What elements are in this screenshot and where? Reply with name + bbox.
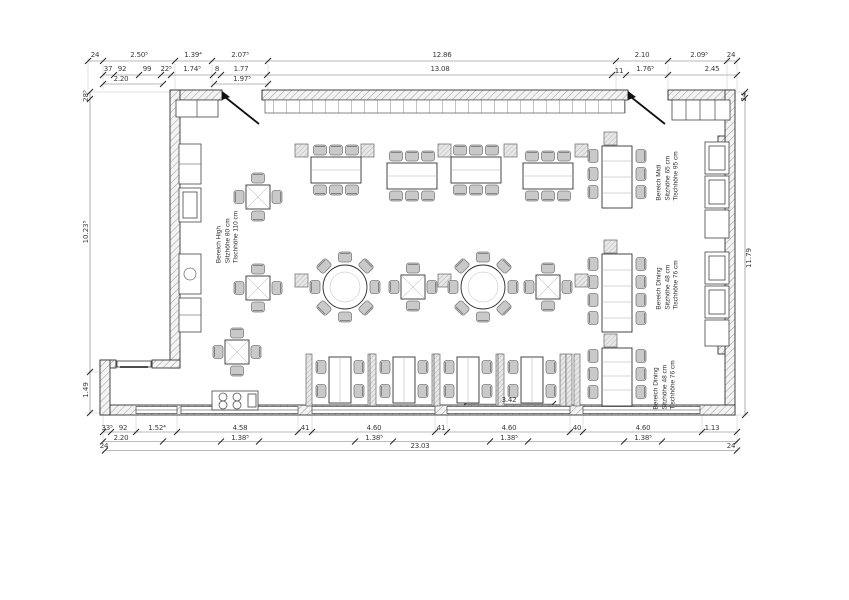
- dim-label: 1.38⁵: [365, 434, 382, 442]
- area-seat-height: Sitzhöhe 65 cm: [664, 151, 673, 200]
- dim-label: 1.49: [82, 382, 90, 398]
- dim-label: 4.60: [367, 424, 382, 432]
- dim-label: 12.86: [432, 51, 451, 59]
- dim-label: 4.60: [502, 424, 517, 432]
- area-name: Bereich Dining: [655, 260, 664, 309]
- dim-label: 2.20: [114, 434, 129, 442]
- area-label-midi: Bereich Midi Sitzhöhe 65 cm Tischhöhe 95…: [655, 151, 681, 200]
- dim-label: 1.77: [234, 65, 249, 73]
- area-name: Bereich Midi: [655, 151, 664, 200]
- area-seat-height: Sitzhöhe 48 cm: [664, 260, 673, 309]
- area-table-height: Tischhöhe 95 cm: [672, 151, 681, 200]
- dim-label: 33⁵: [101, 424, 112, 432]
- dim-label: 92: [119, 424, 128, 432]
- dim-label: 23.03: [410, 442, 429, 450]
- area-seat-height: Sitzhöhe 48 cm: [661, 360, 670, 409]
- service-counter: [212, 391, 258, 410]
- dim-label: 41: [301, 424, 310, 432]
- dim-label: 24: [740, 93, 748, 102]
- dim-label: 11: [615, 67, 624, 75]
- dim-label: 11.79: [745, 248, 753, 268]
- dim-label: 2.45: [705, 65, 720, 73]
- dim-label: 24: [727, 51, 736, 59]
- dim-label: 13.08: [430, 65, 449, 73]
- dim-label: 2.09⁵: [690, 51, 707, 59]
- cabinets-left: [179, 144, 201, 332]
- dim-label: 37: [104, 65, 113, 73]
- floor-plan: 24 2.50⁵ 1.39⁴ 2.07⁵ 12.86 2.10 2.09⁵ 24…: [0, 0, 849, 600]
- area-label-dining-2: Bereich Dining Sitzhöhe 48 cm Tischhöhe …: [652, 360, 678, 409]
- area-label-dining-1: Bereich Dining Sitzhöhe 48 cm Tischhöhe …: [655, 260, 681, 309]
- dim-label: 99: [143, 65, 152, 73]
- plan-graphics: [0, 0, 849, 600]
- dim-label: 8: [215, 65, 219, 73]
- dim-label: 92: [118, 65, 127, 73]
- dim-label: 2.10: [635, 51, 650, 59]
- dim-label: 28⁵: [82, 90, 90, 102]
- dim-label: 3.42: [502, 396, 517, 404]
- side-door: [116, 360, 152, 368]
- dim-label: 1.97⁵: [233, 75, 250, 83]
- booth-row: [306, 354, 580, 406]
- dim-label: 4.60: [636, 424, 651, 432]
- dining-long-table-lower: [588, 348, 646, 406]
- area-table-height: Tischhöhe 76 cm: [672, 260, 681, 309]
- area-table-height: Tischhöhe 110 cm: [232, 211, 241, 263]
- outer-walls: [100, 90, 735, 415]
- dim-label: 2.50⁵: [130, 51, 147, 59]
- dim-label: 1.76⁵: [636, 65, 653, 73]
- dim-label: 4.58: [233, 424, 248, 432]
- dim-label: 1.38⁵: [500, 434, 517, 442]
- area-seat-height: Sitzhöhe 80 cm: [224, 211, 233, 263]
- dim-label: 41: [437, 424, 446, 432]
- dim-label: 24: [91, 51, 100, 59]
- dim-label: 1.38⁵: [634, 434, 651, 442]
- dim-label: 2.07⁵: [231, 51, 248, 59]
- dim-label: 10.23⁵: [82, 221, 90, 244]
- dim-label: 1.13: [705, 424, 720, 432]
- midi-long-table: [588, 146, 646, 208]
- dining-long-table-upper: [588, 254, 646, 332]
- area-name: Bereich High: [215, 211, 224, 263]
- dim-label: 24: [727, 442, 736, 450]
- area-label-high: Bereich High Sitzhöhe 80 cm Tischhöhe 11…: [215, 211, 241, 263]
- dim-label: 1.38⁵: [231, 434, 248, 442]
- entrance-door-right: [628, 90, 668, 124]
- high-table-group: [213, 173, 282, 376]
- area-table-height: Tischhöhe 76 cm: [669, 360, 678, 409]
- dim-label: 1.39⁴: [184, 51, 201, 59]
- dim-label: 1.74⁵: [183, 65, 200, 73]
- dim-label: 40: [573, 424, 582, 432]
- area-name: Bereich Dining: [652, 360, 661, 409]
- entrance-door-left: [222, 90, 262, 124]
- dim-label: 2.20: [114, 75, 129, 83]
- dim-label: 24: [100, 442, 109, 450]
- dim-label: 22⁵: [160, 65, 171, 73]
- dim-label: 1.52⁴: [148, 424, 165, 432]
